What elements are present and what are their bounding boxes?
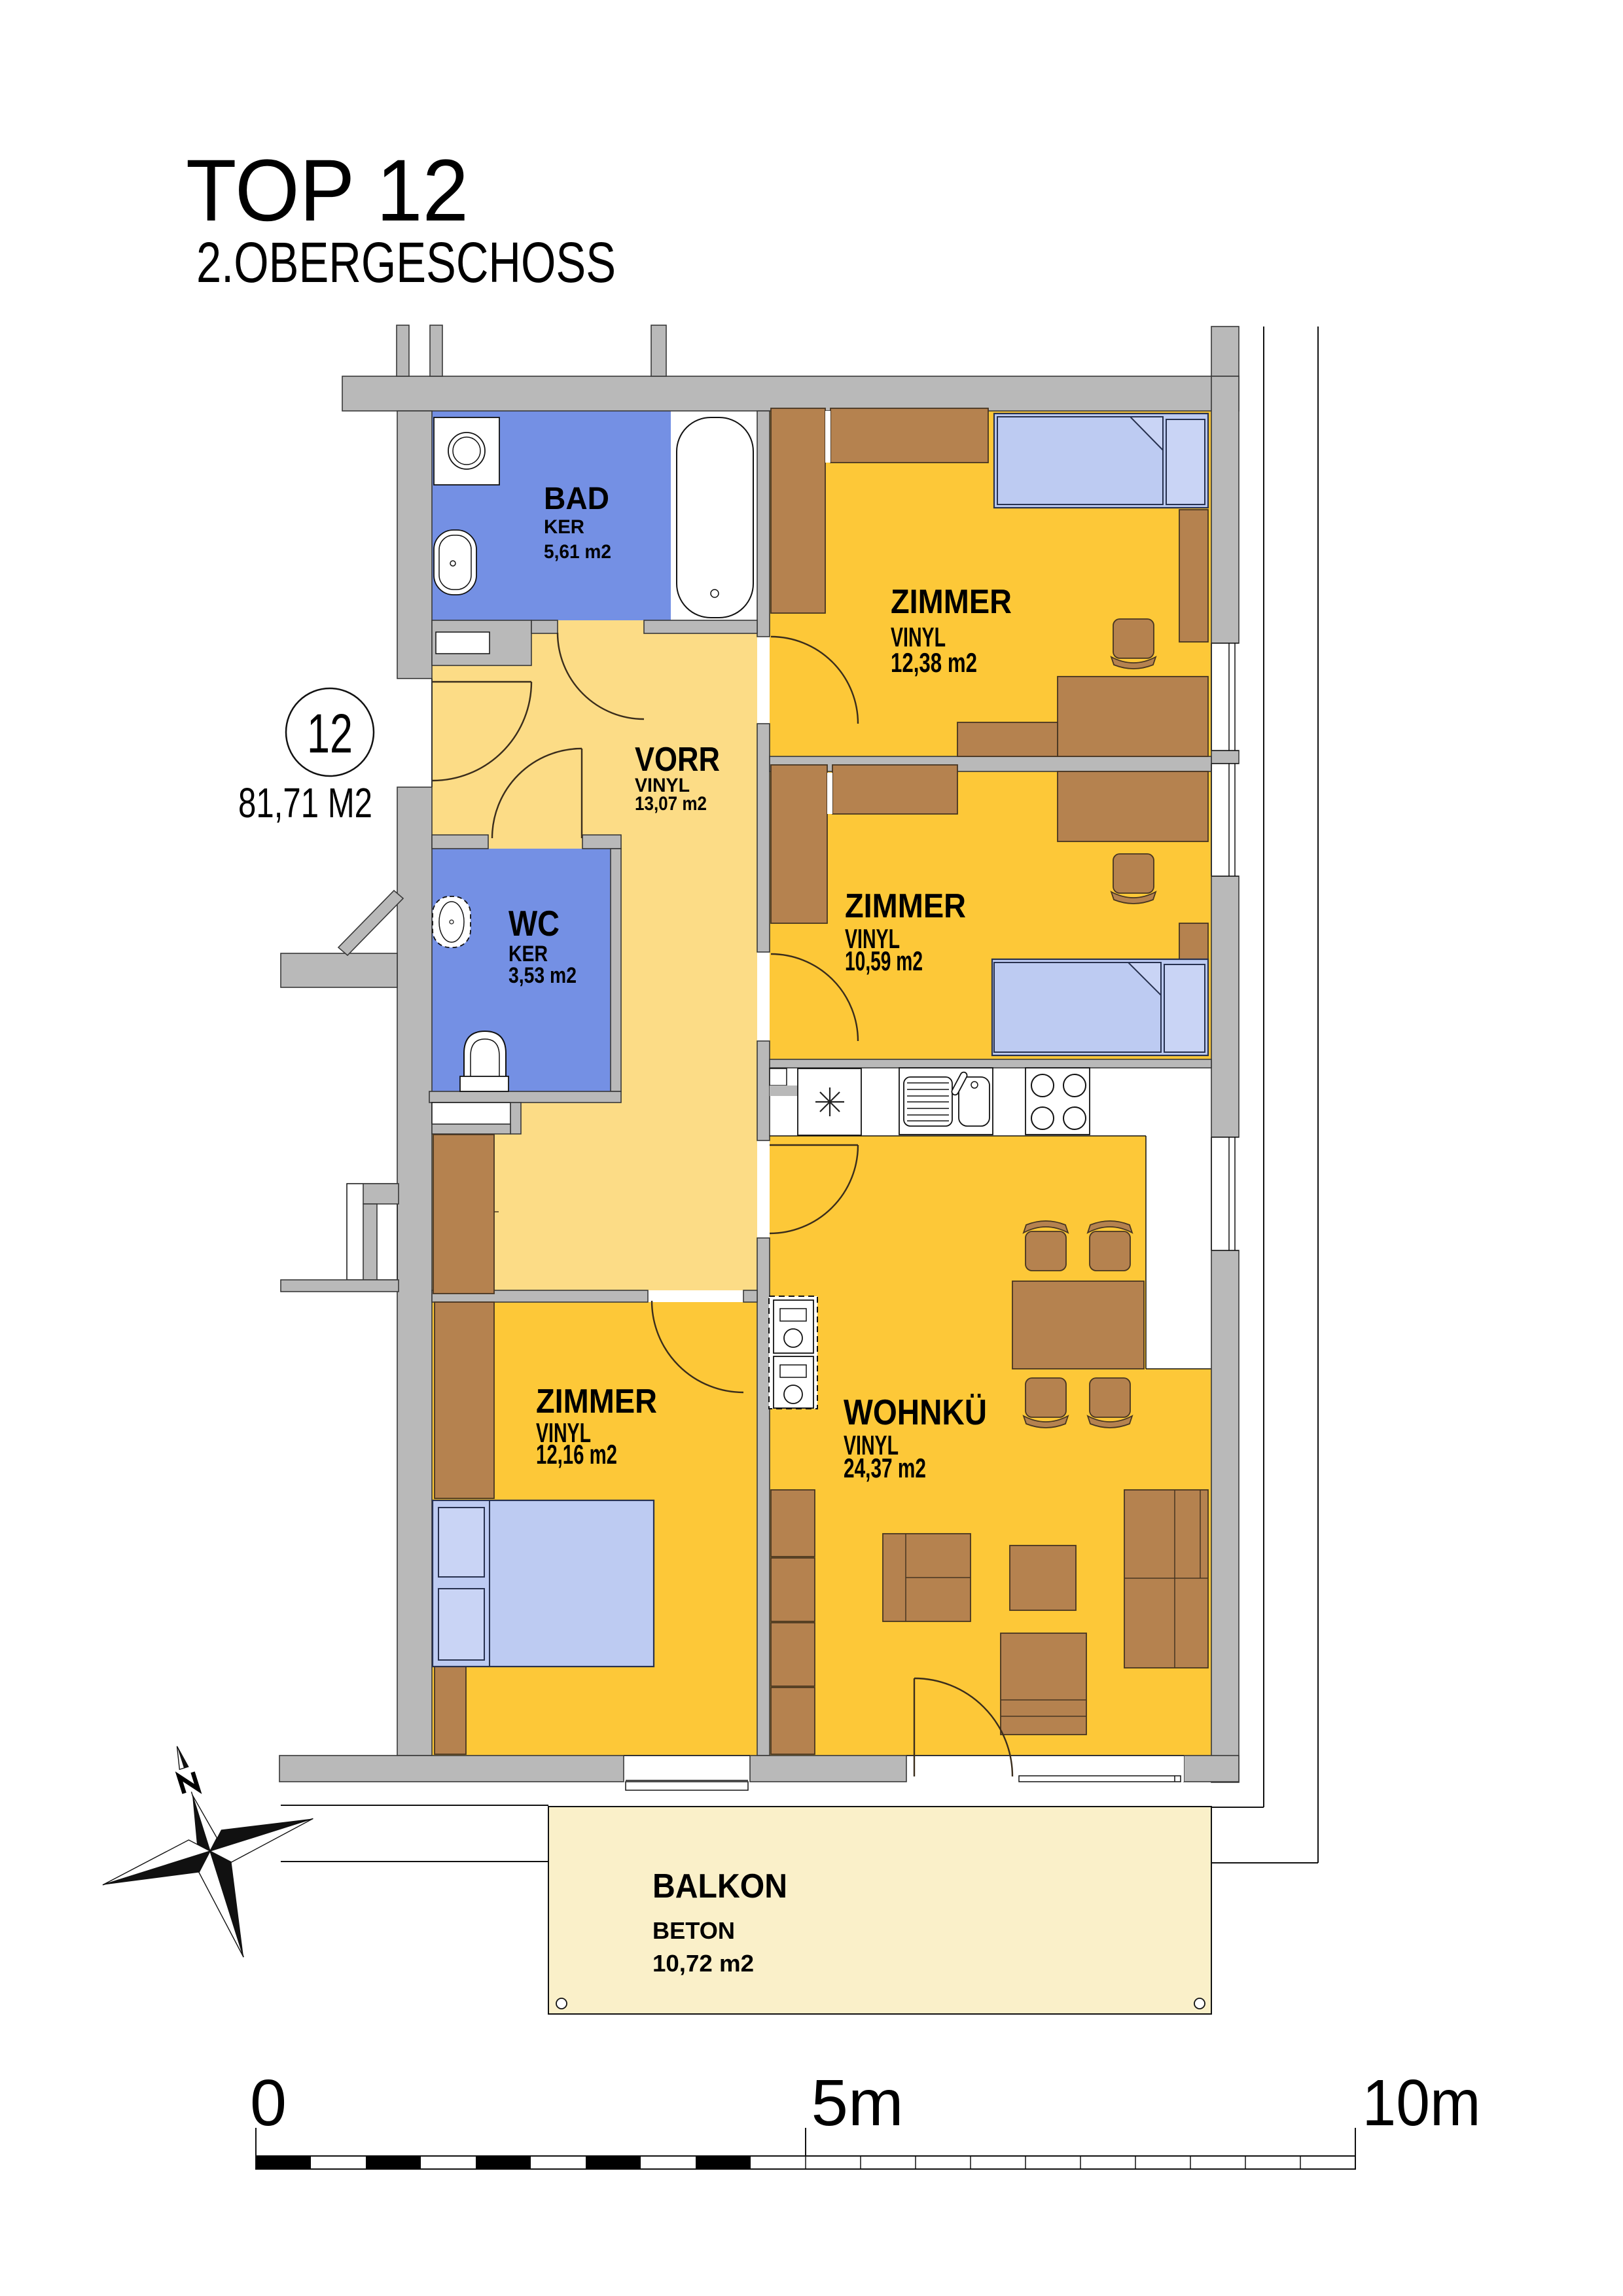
svg-text:5m: 5m bbox=[811, 2066, 904, 2140]
svg-text:24,37 m2: 24,37 m2 bbox=[844, 1453, 926, 1483]
svg-text:12,38 m2: 12,38 m2 bbox=[891, 647, 977, 678]
svg-text:WOHNKÜ: WOHNKÜ bbox=[844, 1392, 987, 1432]
svg-text:12,16 m2: 12,16 m2 bbox=[536, 1439, 617, 1470]
svg-text:BAD: BAD bbox=[544, 482, 609, 516]
svg-text:5,61 m2: 5,61 m2 bbox=[544, 541, 611, 563]
svg-text:ZIMMER: ZIMMER bbox=[845, 887, 966, 925]
svg-text:KER: KER bbox=[544, 516, 584, 538]
svg-text:BALKON: BALKON bbox=[652, 1867, 787, 1905]
svg-text:10,72 m2: 10,72 m2 bbox=[652, 1950, 754, 1977]
svg-text:TOP 12: TOP 12 bbox=[186, 142, 469, 239]
svg-text:13,07 m2: 13,07 m2 bbox=[635, 793, 707, 815]
svg-text:3,53 m2: 3,53 m2 bbox=[508, 963, 577, 988]
svg-text:ZIMMER: ZIMMER bbox=[891, 583, 1012, 621]
svg-text:10m: 10m bbox=[1363, 2066, 1481, 2140]
svg-text:0: 0 bbox=[250, 2066, 287, 2140]
svg-text:WC: WC bbox=[508, 903, 560, 944]
svg-text:BETON: BETON bbox=[652, 1917, 735, 1944]
svg-text:10,59 m2: 10,59 m2 bbox=[845, 945, 923, 976]
svg-text:VORR: VORR bbox=[635, 741, 720, 779]
svg-text:ZIMMER: ZIMMER bbox=[536, 1383, 657, 1421]
svg-text:2.OBERGESCHOSS: 2.OBERGESCHOSS bbox=[196, 231, 616, 294]
svg-text:81,71 M2: 81,71 M2 bbox=[238, 779, 372, 826]
svg-text:12: 12 bbox=[307, 703, 353, 764]
